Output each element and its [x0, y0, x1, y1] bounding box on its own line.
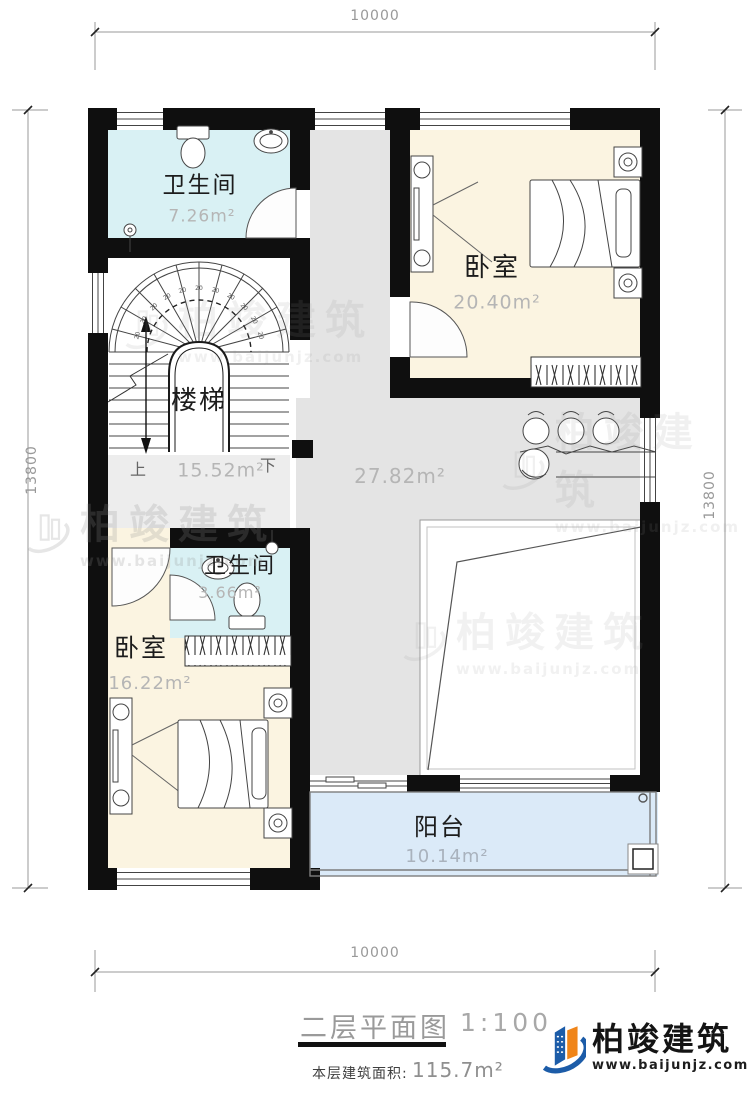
- stairs-area: 15.52m²: [177, 462, 265, 481]
- bedroom2-name: 卧室: [114, 636, 168, 661]
- bed-icon: [530, 180, 640, 267]
- sink-icon: [254, 129, 288, 153]
- title-underline: [298, 1042, 446, 1047]
- corridor: [310, 130, 390, 398]
- window-top-bedroom1: [420, 108, 570, 130]
- stairs-name: 楼梯: [171, 388, 227, 414]
- floor-plan-sheet: 2020202020202020202020: [0, 0, 750, 1095]
- sliding-door-balcony: [310, 775, 407, 792]
- floor-area-label: 本层建筑面积:: [312, 1063, 408, 1083]
- dimension-right: 13800: [703, 470, 717, 520]
- svg-text:20: 20: [195, 285, 203, 292]
- bedroom1-area: 20.40m²: [453, 294, 541, 313]
- hall-strip: [296, 520, 420, 775]
- bedroom1-name: 卧室: [464, 255, 520, 281]
- dimension-left: 13800: [25, 445, 39, 495]
- wardrobe-icon-2: [185, 636, 291, 666]
- floor-plan-drawing: 2020202020202020202020: [0, 0, 750, 1095]
- dimension-bottom: 10000: [350, 946, 400, 960]
- bathroom1-area: 7.26m²: [168, 209, 235, 226]
- bathroom1-name: 卫生间: [163, 175, 238, 198]
- sheet-title: 二层平面图: [300, 1006, 450, 1045]
- brand-website: www.baijunjz.com: [592, 1058, 749, 1073]
- balcony-drain-icon: [628, 844, 658, 874]
- balcony-name: 阳台: [414, 815, 466, 839]
- stairs-down-label: 下: [260, 458, 276, 474]
- window-balcony-wall: [460, 775, 610, 792]
- window-left-stairs: [88, 273, 108, 333]
- brand-logo-icon: [536, 1018, 586, 1078]
- balcony-area: 10.14m²: [405, 848, 488, 866]
- stairs-up-label: 上: [130, 462, 146, 478]
- wardrobe-icon: [531, 357, 641, 387]
- window-bottom-bedroom2: [117, 868, 250, 890]
- void-opening: [420, 520, 642, 776]
- brand-logo: 柏竣建筑 www.baijunjz.com: [536, 1018, 749, 1078]
- window-top-corridor: [315, 108, 385, 130]
- dimension-top: 10000: [350, 9, 400, 23]
- bed-icon-2: [178, 720, 268, 808]
- window-right-hall: [640, 418, 660, 502]
- room-hall: [296, 398, 640, 520]
- brand-name: 柏竣建筑: [592, 1023, 749, 1055]
- window-top-bath1: [117, 108, 163, 130]
- bathroom2-name: 卫生间: [204, 556, 276, 578]
- floor-area-value: 115.7m²: [412, 1058, 504, 1082]
- hall-area: 27.82m²: [354, 466, 446, 486]
- bedroom2-area: 16.22m²: [108, 675, 191, 693]
- bathroom2-area: 3.66m²: [198, 585, 262, 601]
